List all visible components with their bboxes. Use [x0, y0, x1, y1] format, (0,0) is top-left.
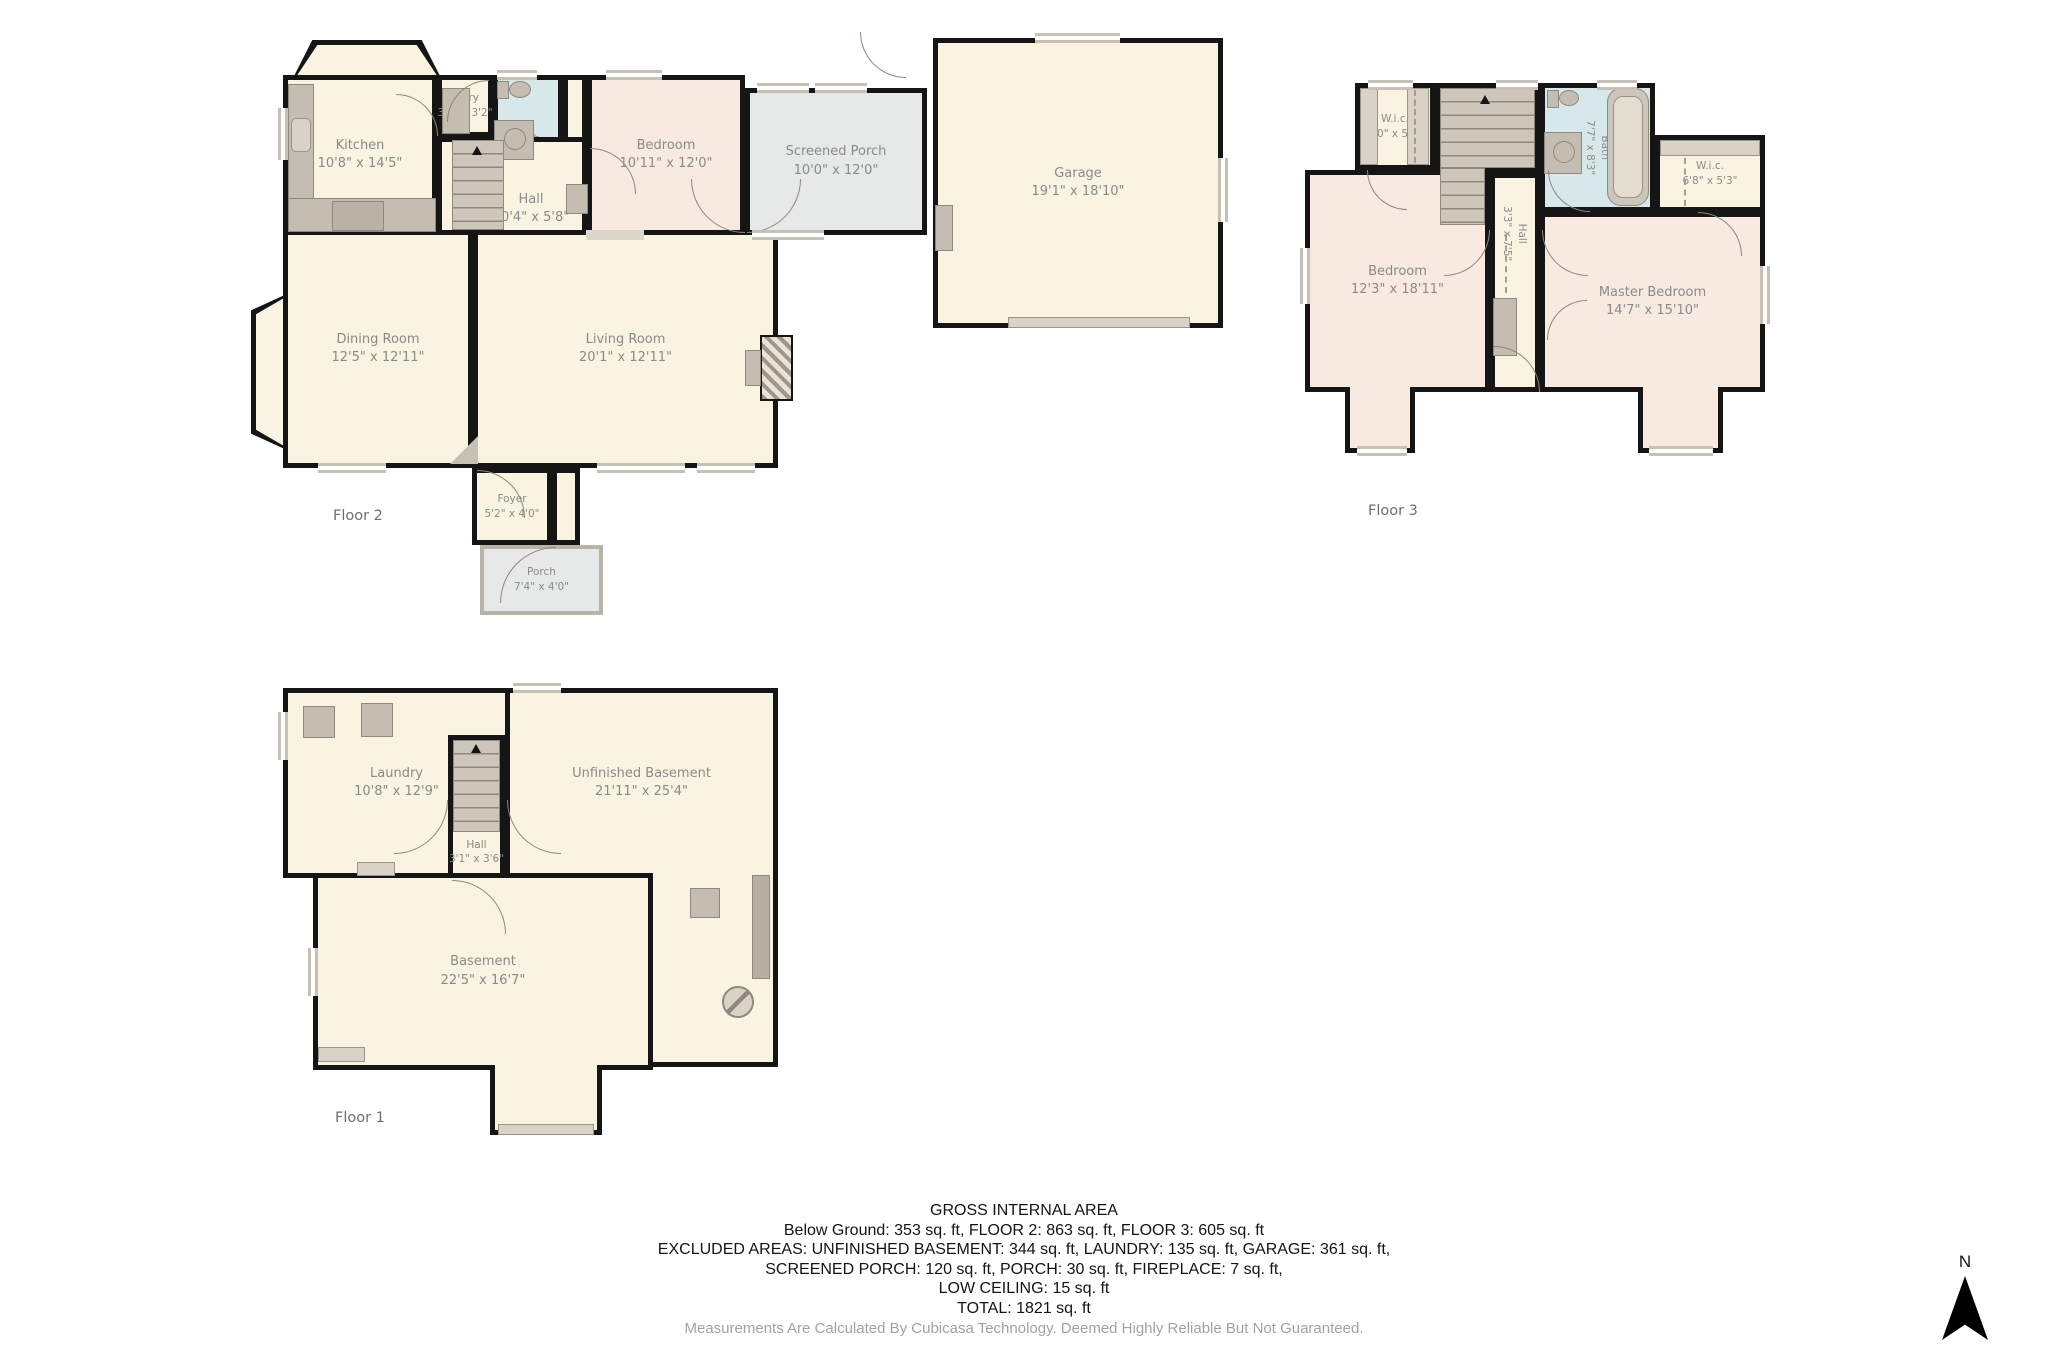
toilet-icon-f3	[1547, 90, 1559, 108]
closet-rail	[1414, 90, 1416, 163]
room-name: Hall	[466, 838, 486, 853]
summary-disclaimer: Measurements Are Calculated By Cubicasa …	[0, 1319, 2048, 1339]
washer-icon	[303, 706, 335, 738]
room-name: W.i.c.	[1696, 159, 1724, 174]
bathtub-inner	[1613, 96, 1643, 198]
window	[1035, 33, 1120, 43]
summary-line: LOW CEILING: 15 sq. ft	[0, 1279, 2048, 1299]
room-name: Living Room	[586, 331, 666, 349]
room-dims: 7'7" x 8'3"	[1583, 120, 1598, 175]
window	[606, 70, 662, 80]
stairs-landing-f3	[1440, 168, 1485, 225]
room-dims: 20'1" x 12'11"	[579, 349, 672, 367]
compass: N	[1928, 1252, 2002, 1340]
master-dormer	[1638, 387, 1723, 453]
compass-north-label: N	[1928, 1252, 2002, 1272]
room-dims: 10'11" x 12'0"	[620, 155, 713, 173]
wic-shelf	[1360, 88, 1378, 165]
summary-line: SCREENED PORCH: 120 sq. ft, PORCH: 30 sq…	[0, 1260, 2048, 1280]
floor3-label: Floor 3	[1368, 503, 1418, 519]
window	[318, 463, 386, 473]
summary-title: GROSS INTERNAL AREA	[0, 1201, 2048, 1221]
storage-box	[690, 888, 720, 918]
room-dims: 21'11" x 25'4"	[595, 783, 688, 801]
bath-sink-basin-f3	[1553, 141, 1575, 163]
room-dims: 3'3" x 7'5"	[1500, 206, 1515, 261]
window	[1649, 446, 1713, 456]
hall-cabinet	[566, 184, 588, 214]
stairs-arrow-f3	[1480, 95, 1490, 104]
bulkhead-patch	[495, 1065, 597, 1071]
north-arrow-icon	[1942, 1276, 1988, 1340]
room-garage: Garage 19'1" x 18'10"	[933, 38, 1223, 328]
room-dims: 10'0" x 12'0"	[794, 162, 879, 180]
window	[308, 948, 318, 996]
room-dims: 6'8" x 5'3"	[1682, 174, 1737, 189]
room-dims: 10'8" x 12'9"	[354, 783, 439, 801]
window	[697, 463, 755, 473]
dryer-icon	[361, 703, 393, 737]
summary-total: TOTAL: 1821 sq. ft	[0, 1299, 2048, 1319]
room-foyer-closet	[552, 468, 580, 545]
hall-living-opening	[586, 230, 644, 240]
room-name: Bedroom	[637, 137, 696, 155]
window	[1597, 80, 1637, 90]
room-name: Master Bedroom	[1599, 284, 1706, 302]
window	[757, 83, 809, 93]
dormer-patch	[1350, 387, 1410, 393]
dormer-patch	[1643, 387, 1718, 393]
bedroom-dormer	[1345, 387, 1415, 453]
room-dims: 12'3" x 18'11"	[1351, 281, 1444, 299]
room-dims: 14'7" x 15'10"	[1606, 302, 1699, 320]
kitchen-sink-icon	[291, 118, 311, 152]
room-name: Kitchen	[336, 137, 385, 155]
window	[1300, 248, 1310, 304]
support-beam	[752, 875, 770, 979]
window	[278, 712, 288, 760]
fireplace-hearth	[745, 350, 761, 386]
room-name: Garage	[1054, 165, 1102, 183]
window	[1760, 266, 1770, 324]
window	[597, 463, 685, 473]
stairs-up-arrow-f1	[471, 744, 481, 753]
window	[278, 108, 288, 160]
window	[815, 83, 867, 93]
room-name: Bedroom	[1368, 263, 1427, 281]
closet-rail	[1505, 235, 1507, 293]
window	[1218, 158, 1228, 222]
stairs-up-arrow-f2	[472, 146, 482, 155]
room-name: Laundry	[370, 765, 423, 783]
room-name: Hall	[519, 191, 544, 209]
garage-door	[1008, 317, 1190, 328]
room-name: Unfinished Basement	[572, 765, 711, 783]
room-name: W.i.c.	[1381, 112, 1409, 127]
floorplan-canvas: Kitchen 10'8" x 14'5" Entry 3'1" x 3'2" …	[0, 0, 2048, 1366]
room-dims: 12'5" x 12'11"	[332, 349, 425, 367]
wic-shelf	[1660, 140, 1760, 156]
window	[752, 230, 824, 240]
bath-sink-basin-f2	[504, 128, 526, 150]
closet-rail	[1684, 158, 1686, 206]
fireplace-icon	[760, 335, 793, 401]
area-summary: GROSS INTERNAL AREA Below Ground: 353 sq…	[0, 1201, 2048, 1339]
stairs-f1	[453, 740, 500, 832]
room-dining: Dining Room 12'5" x 12'11"	[283, 230, 473, 468]
toilet-icon-f2	[497, 81, 509, 99]
floor2-label: Floor 2	[333, 508, 383, 524]
stove-icon	[332, 201, 384, 231]
room-name: Screened Porch	[786, 143, 887, 161]
toilet-bowl-f2	[509, 81, 531, 98]
toilet-bowl-f3	[1559, 90, 1579, 106]
room-name: Hall	[1515, 206, 1530, 261]
water-heater-icon	[722, 986, 754, 1018]
floor1-label: Floor 1	[335, 1110, 385, 1126]
garage-side-door	[935, 205, 953, 251]
room-name: Basement	[450, 953, 516, 971]
window	[497, 70, 537, 80]
room-dims: 22'5" x 16'7"	[441, 972, 526, 990]
summary-line: EXCLUDED AREAS: UNFINISHED BASEMENT: 344…	[0, 1240, 2048, 1260]
window	[513, 683, 561, 693]
window	[1368, 80, 1413, 90]
window	[1357, 446, 1407, 456]
door-arc	[860, 32, 906, 78]
bulkhead-step	[498, 1124, 594, 1135]
room-dims: 19'1" x 18'10"	[1032, 183, 1125, 201]
basement-shelf	[318, 1047, 365, 1062]
window	[1496, 80, 1538, 90]
wic-shelf	[1407, 88, 1429, 165]
laundry-shelf	[357, 862, 395, 876]
room-dims: 3'1" x 3'6"	[449, 852, 504, 867]
room-dims: 10'4" x 5'8"	[493, 209, 569, 227]
room-dims: 10'8" x 14'5"	[318, 155, 403, 173]
summary-line: Below Ground: 353 sq. ft, FLOOR 2: 863 s…	[0, 1221, 2048, 1241]
room-living: Living Room 20'1" x 12'11"	[473, 230, 778, 468]
room-name: Dining Room	[336, 331, 419, 349]
